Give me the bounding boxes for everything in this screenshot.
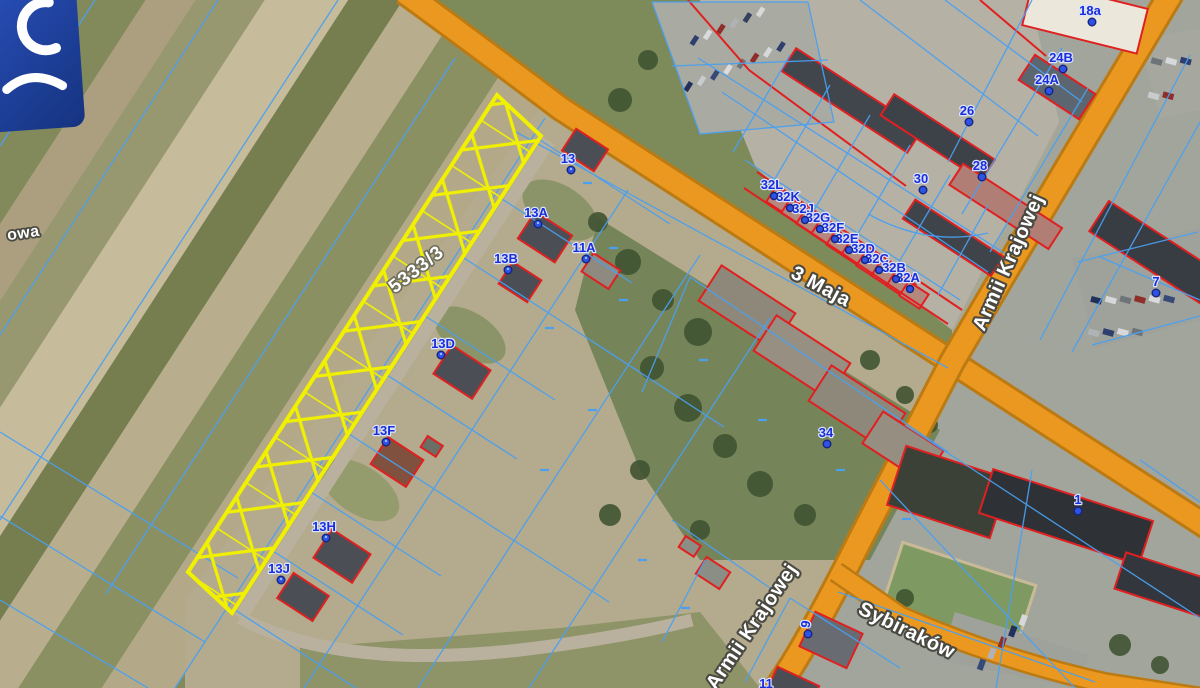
address-label[interactable]: 18a <box>1079 3 1101 18</box>
address-marker[interactable] <box>277 576 285 584</box>
address-label[interactable]: 13B <box>494 251 518 266</box>
address-marker[interactable] <box>907 286 914 293</box>
address-label[interactable]: 11 <box>759 676 773 688</box>
address-marker[interactable] <box>534 220 542 228</box>
address-label[interactable]: 26 <box>960 103 974 118</box>
address-label[interactable]: 11A <box>572 240 596 255</box>
address-marker[interactable] <box>802 217 809 224</box>
address-label[interactable]: 13F <box>373 423 395 438</box>
address-label[interactable]: 1 <box>1074 492 1081 507</box>
address-label[interactable]: 13J <box>268 561 290 576</box>
address-marker[interactable] <box>1088 18 1096 26</box>
address-marker[interactable] <box>978 173 986 181</box>
address-label[interactable]: 28 <box>973 158 987 173</box>
address-label[interactable]: 13A <box>524 205 548 220</box>
app-logo-glyph <box>0 0 85 134</box>
address-label[interactable]: 7 <box>1152 274 1159 289</box>
address-marker[interactable] <box>919 186 927 194</box>
address-marker[interactable] <box>787 205 794 212</box>
map-canvas[interactable]: 5333/3 3 Maja Armii Krajowej Armii Krajo… <box>0 0 1200 688</box>
address-marker[interactable] <box>1074 507 1082 515</box>
app-logo <box>0 0 85 134</box>
address-marker[interactable] <box>322 534 330 542</box>
address-marker[interactable] <box>1045 87 1053 95</box>
address-label[interactable]: 24A <box>1035 72 1059 87</box>
address-marker[interactable] <box>965 118 973 126</box>
address-marker[interactable] <box>876 267 883 274</box>
address-marker[interactable] <box>832 236 839 243</box>
address-marker[interactable] <box>582 255 590 263</box>
address-marker[interactable] <box>846 247 853 254</box>
address-marker[interactable] <box>382 438 390 446</box>
address-label[interactable]: 13H <box>312 519 336 534</box>
address-label[interactable]: 30 <box>914 171 928 186</box>
address-marker[interactable] <box>771 193 778 200</box>
address-label[interactable]: 13 <box>561 151 575 166</box>
address-marker[interactable] <box>804 630 812 638</box>
address-marker[interactable] <box>504 266 512 274</box>
address-marker[interactable] <box>823 440 831 448</box>
address-marker[interactable] <box>817 226 824 233</box>
address-label[interactable]: 13D <box>431 336 455 351</box>
aerial-terrain <box>0 0 1200 688</box>
address-label[interactable]: 24B <box>1049 50 1073 65</box>
address-marker[interactable] <box>567 166 575 174</box>
address-marker[interactable] <box>1152 289 1160 297</box>
address-marker[interactable] <box>893 276 900 283</box>
address-marker[interactable] <box>862 257 869 264</box>
address-marker[interactable] <box>437 351 445 359</box>
address-label[interactable]: 34 <box>819 425 834 440</box>
address-marker[interactable] <box>1059 65 1067 73</box>
